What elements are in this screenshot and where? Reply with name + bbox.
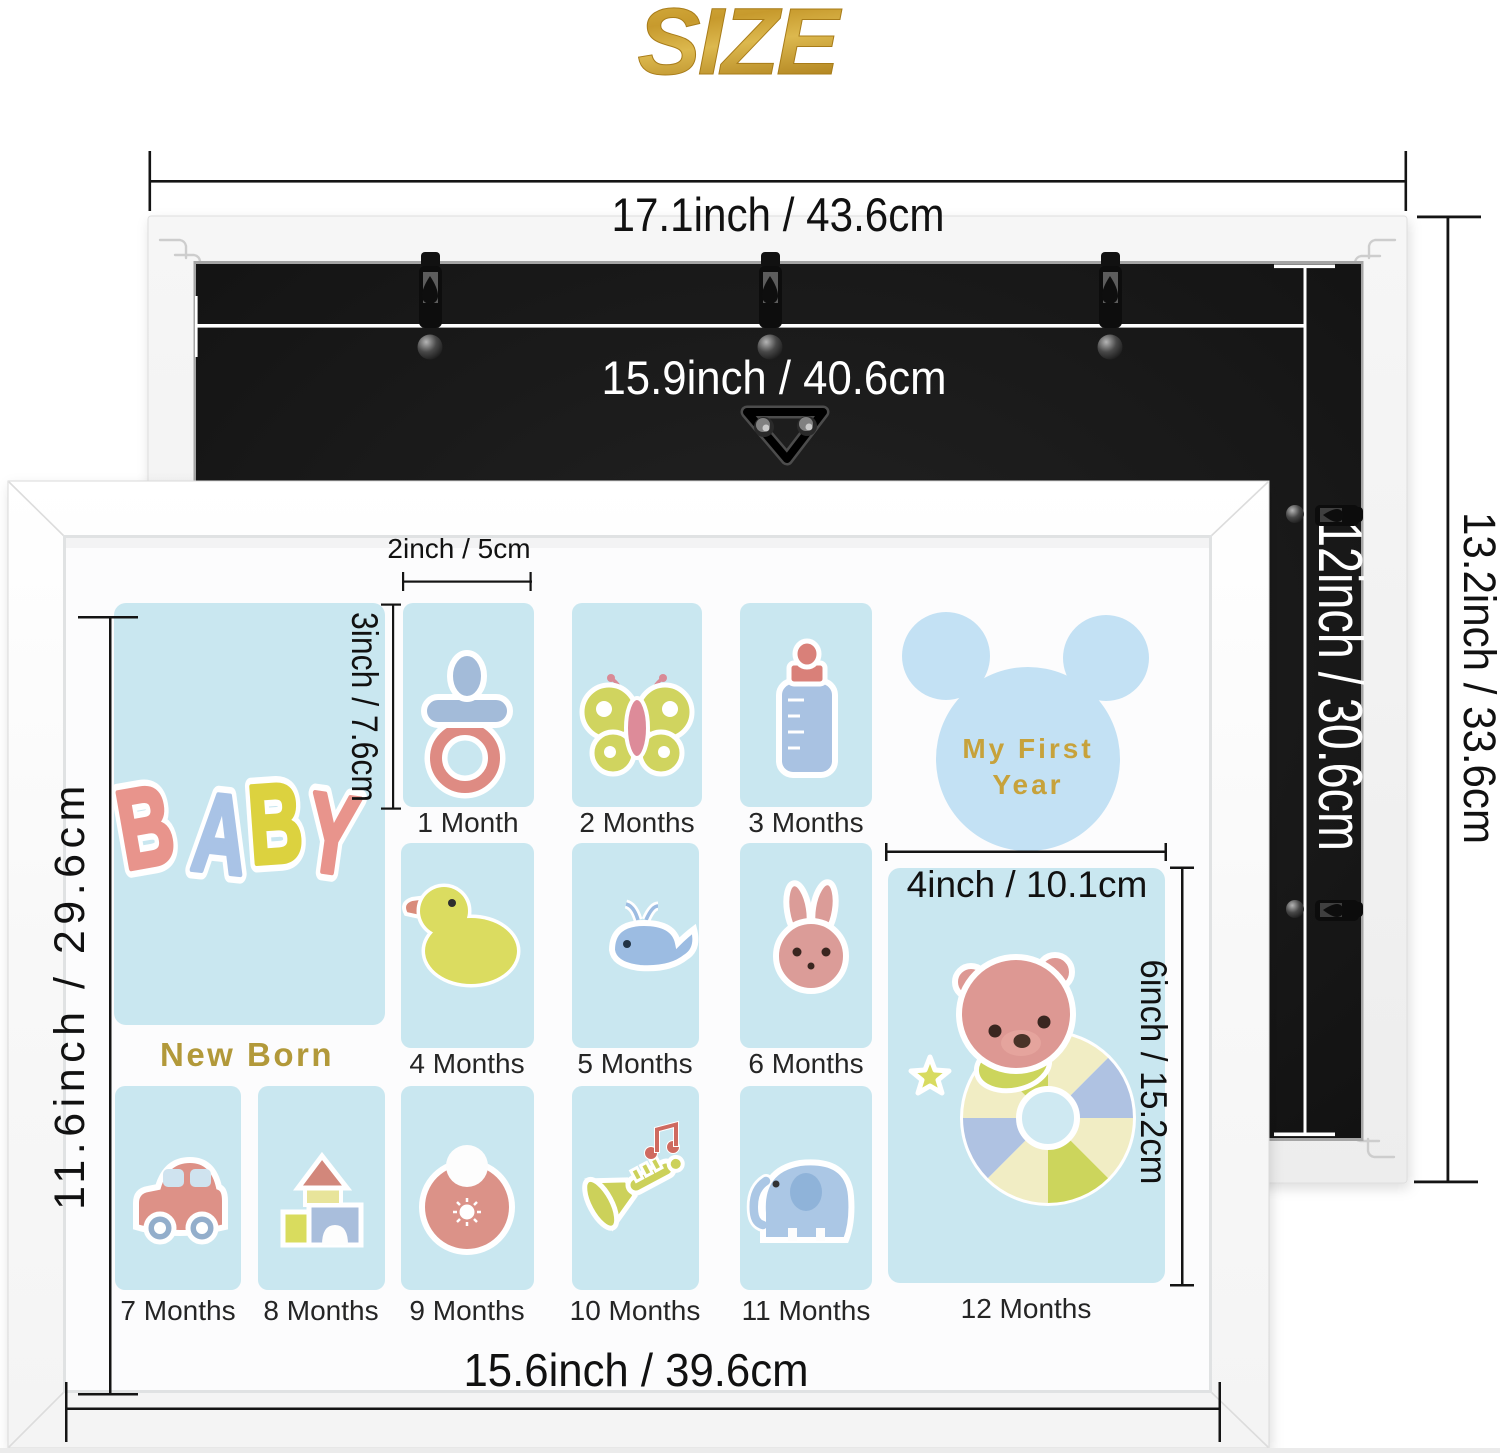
svg-text:10 Months: 10 Months (570, 1295, 701, 1326)
svg-text:6 Months: 6 Months (748, 1048, 863, 1079)
svg-text:4inch / 10.1cm: 4inch / 10.1cm (907, 864, 1148, 905)
svg-text:SIZE: SIZE (637, 0, 842, 95)
svg-text:12inch / 30.6cm: 12inch / 30.6cm (1305, 521, 1374, 851)
svg-text:11 Months: 11 Months (742, 1295, 871, 1326)
svg-text:3inch / 7.6cm: 3inch / 7.6cm (344, 612, 385, 802)
svg-text:3 Months: 3 Months (748, 807, 863, 838)
svg-text:5 Months: 5 Months (577, 1048, 692, 1079)
svg-text:8 Months: 8 Months (263, 1295, 378, 1326)
svg-text:New Born: New Born (160, 1036, 334, 1073)
svg-text:4 Months: 4 Months (409, 1048, 524, 1079)
svg-text:15.9inch / 40.6cm: 15.9inch / 40.6cm (602, 351, 947, 404)
svg-text:11.6inch / 29.6cm: 11.6inch / 29.6cm (46, 780, 94, 1210)
svg-text:15.6inch / 39.6cm: 15.6inch / 39.6cm (464, 1344, 809, 1396)
svg-text:B: B (244, 760, 306, 889)
svg-text:17.1inch / 43.6cm: 17.1inch / 43.6cm (612, 188, 945, 241)
svg-text:12 Months: 12 Months (961, 1293, 1092, 1324)
svg-text:2 Months: 2 Months (579, 807, 694, 838)
svg-text:9 Months: 9 Months (409, 1295, 524, 1326)
svg-text:6inch / 15.2cm: 6inch / 15.2cm (1133, 960, 1174, 1185)
svg-text:13.2inch / 33.6cm: 13.2inch / 33.6cm (1454, 512, 1500, 844)
svg-text:7 Months: 7 Months (120, 1295, 235, 1326)
svg-text:1 Month: 1 Month (417, 807, 518, 838)
svg-text:2inch / 5cm: 2inch / 5cm (387, 533, 530, 564)
svg-text:My First: My First (962, 733, 1093, 764)
svg-text:Year: Year (992, 769, 1063, 800)
